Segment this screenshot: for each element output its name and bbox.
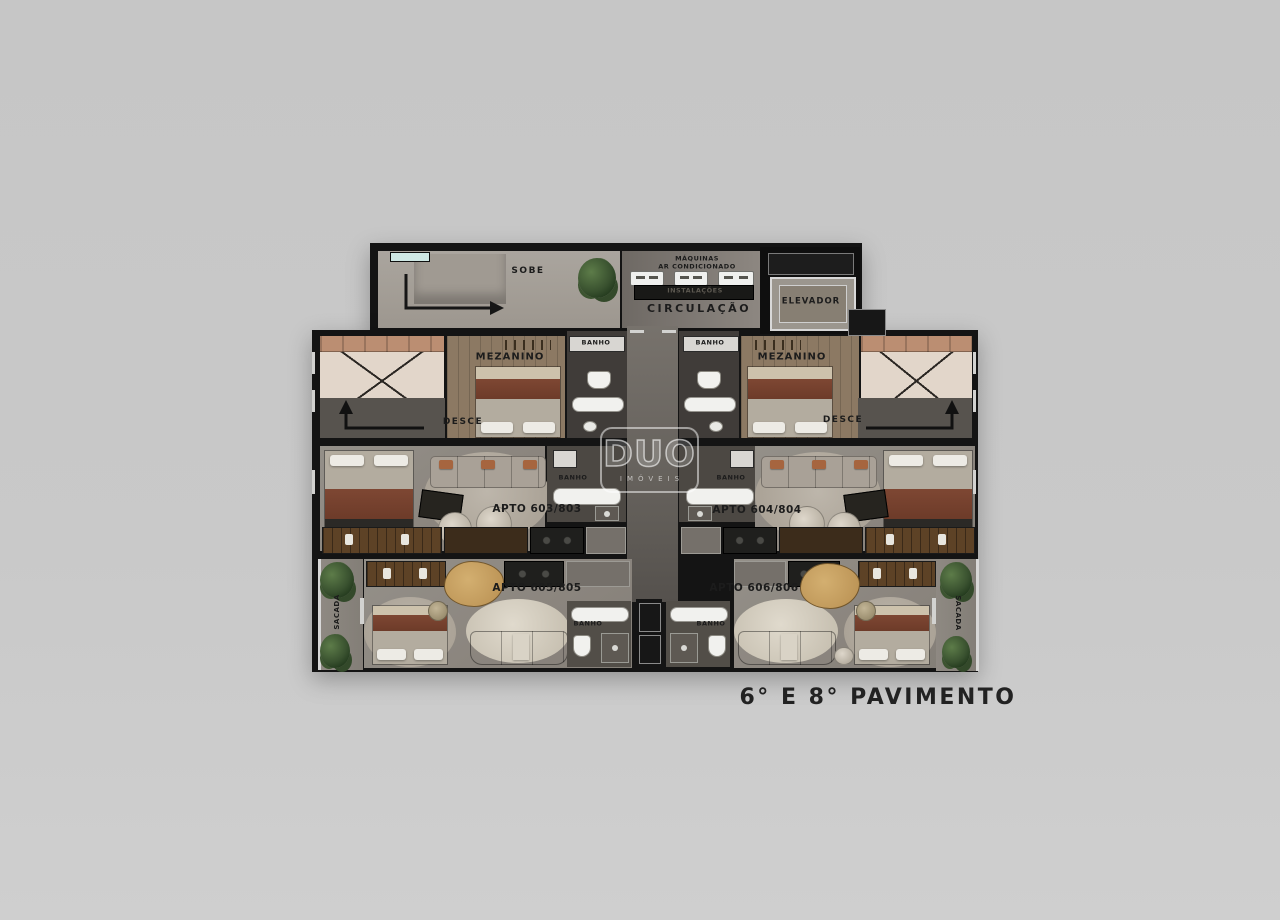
plant-balcony (940, 562, 972, 598)
stairs-down-right-arrow (856, 400, 966, 436)
bed (475, 366, 561, 438)
bed-body (373, 631, 447, 664)
window-opening (312, 390, 315, 412)
kitchen-shelves (322, 527, 442, 554)
balcony-door (360, 598, 364, 624)
watermark-subtitle: IMÓVEIS (615, 475, 684, 483)
bed-blanket (325, 489, 413, 519)
label-elevator: ELEVADOR (782, 297, 840, 306)
label-circulation: CIRCULAÇÃO (647, 303, 751, 315)
label-bath-603: BANHO (559, 474, 588, 481)
apto-606-floor (734, 559, 936, 668)
mezzanine-right-bath (679, 331, 739, 438)
mezzanine-left-bath (567, 331, 627, 438)
label-machines-2: AR CONDICIONADO (658, 263, 735, 270)
bed-body (855, 631, 929, 664)
label-bath-606: BANHO (697, 620, 726, 627)
chair (856, 601, 876, 621)
central-shaft (636, 599, 662, 667)
bed-body (325, 451, 413, 489)
cooktop (530, 527, 584, 554)
bed-blanket (884, 489, 972, 519)
label-bath-mezz-right: BANHO (696, 339, 725, 346)
label-sacada-right: SACADA (953, 595, 961, 630)
label-desce-right: DESCE (823, 416, 863, 426)
label-apto-604: APTO 604/804 (712, 505, 801, 517)
label-apto-605: APTO 605/805 (492, 583, 581, 595)
sink (583, 421, 597, 432)
bathtub (572, 397, 624, 412)
stairs-down-left-arrow (326, 400, 430, 436)
closet-shelves (858, 561, 936, 587)
label-apto-606: APTO 606/806 (709, 583, 798, 595)
label-sacada-left: SACADA (334, 594, 342, 629)
window-opening (973, 390, 976, 412)
bed-head (748, 367, 832, 379)
sofa (761, 456, 877, 488)
label-desce-left: DESCE (443, 418, 483, 428)
window-opening (973, 352, 976, 374)
label-mezzanine-right: MEZANINO (758, 352, 827, 363)
label-sobe: SOBE (511, 267, 544, 277)
closet-shelves (366, 561, 446, 587)
watermark-logo: DUO (603, 437, 696, 473)
toilet (587, 371, 611, 389)
label-bath-605: BANHO (574, 620, 603, 627)
bed-head (476, 367, 560, 379)
sofa (430, 456, 546, 488)
apto-603-kitchen (320, 525, 626, 554)
kitchen-counter-wood (779, 527, 863, 554)
bed-blanket (748, 379, 832, 399)
toilet (697, 371, 721, 389)
shower (595, 506, 619, 521)
plant-balcony (942, 636, 970, 668)
sink (709, 421, 723, 432)
apto-604-kitchen (679, 525, 975, 554)
watermark: DUO IMÓVEIS (600, 427, 699, 493)
shaft-box (639, 635, 661, 664)
desk (800, 563, 860, 609)
apto-606-bath (666, 601, 730, 667)
door-opening (630, 330, 644, 333)
plant-hall (578, 258, 616, 298)
bathtub (686, 488, 754, 505)
apto-605-bath (567, 601, 631, 667)
shower (688, 506, 712, 521)
bath-shelf (553, 450, 577, 468)
ac-unit (674, 271, 708, 286)
toilet (708, 635, 726, 657)
label-mezzanine-left: MEZANINO (476, 352, 545, 363)
void-sofa (320, 336, 444, 352)
leather-sofa (470, 631, 568, 665)
toilet (573, 635, 591, 657)
shower (601, 633, 629, 663)
kitchen-counter (586, 527, 626, 554)
shaft-box (848, 309, 886, 336)
window-opening (973, 470, 976, 494)
bathtub (684, 397, 736, 412)
window-opening (312, 470, 315, 494)
shelf-icons (505, 340, 551, 350)
ac-unit (718, 271, 754, 286)
shaft-box (639, 603, 661, 632)
ac-unit (630, 271, 664, 286)
bed-body (884, 451, 972, 489)
pouf (834, 647, 854, 665)
void-sofa (861, 336, 972, 352)
cooktop (723, 527, 777, 554)
bed (747, 366, 833, 438)
label-apto-603: APTO 603/803 (492, 504, 581, 516)
door-opening (662, 330, 676, 333)
label-installations: INSTALAÇÕES (667, 287, 723, 294)
kitchen-shelves (865, 527, 975, 554)
label-bath-mezz-left: BANHO (582, 339, 611, 346)
bath-shelf (730, 450, 754, 468)
stairs-up-arrow (392, 268, 510, 318)
balcony-door (932, 598, 936, 624)
hall-sill (390, 252, 430, 262)
window-opening (312, 352, 315, 374)
kitchen-counter (681, 527, 721, 554)
kitchen-counter-wood (444, 527, 528, 554)
bed (883, 450, 973, 530)
bed-blanket (476, 379, 560, 399)
floor-title: 6° E 8° PAVIMENTO (739, 686, 1016, 710)
bed (324, 450, 414, 530)
shower (670, 633, 698, 663)
leather-sofa (738, 631, 836, 665)
plant-balcony (320, 634, 350, 668)
elevator-shaft (768, 253, 854, 275)
chair (428, 601, 448, 621)
bed-body (748, 399, 832, 437)
plant-balcony (320, 562, 354, 598)
bed-body (476, 399, 560, 437)
label-bath-604: BANHO (717, 474, 746, 481)
floor-plan-stage: SOBE MÁQUINAS AR CONDICIONADO INSTALAÇÕE… (0, 0, 1280, 920)
shelf-icons (755, 340, 801, 350)
